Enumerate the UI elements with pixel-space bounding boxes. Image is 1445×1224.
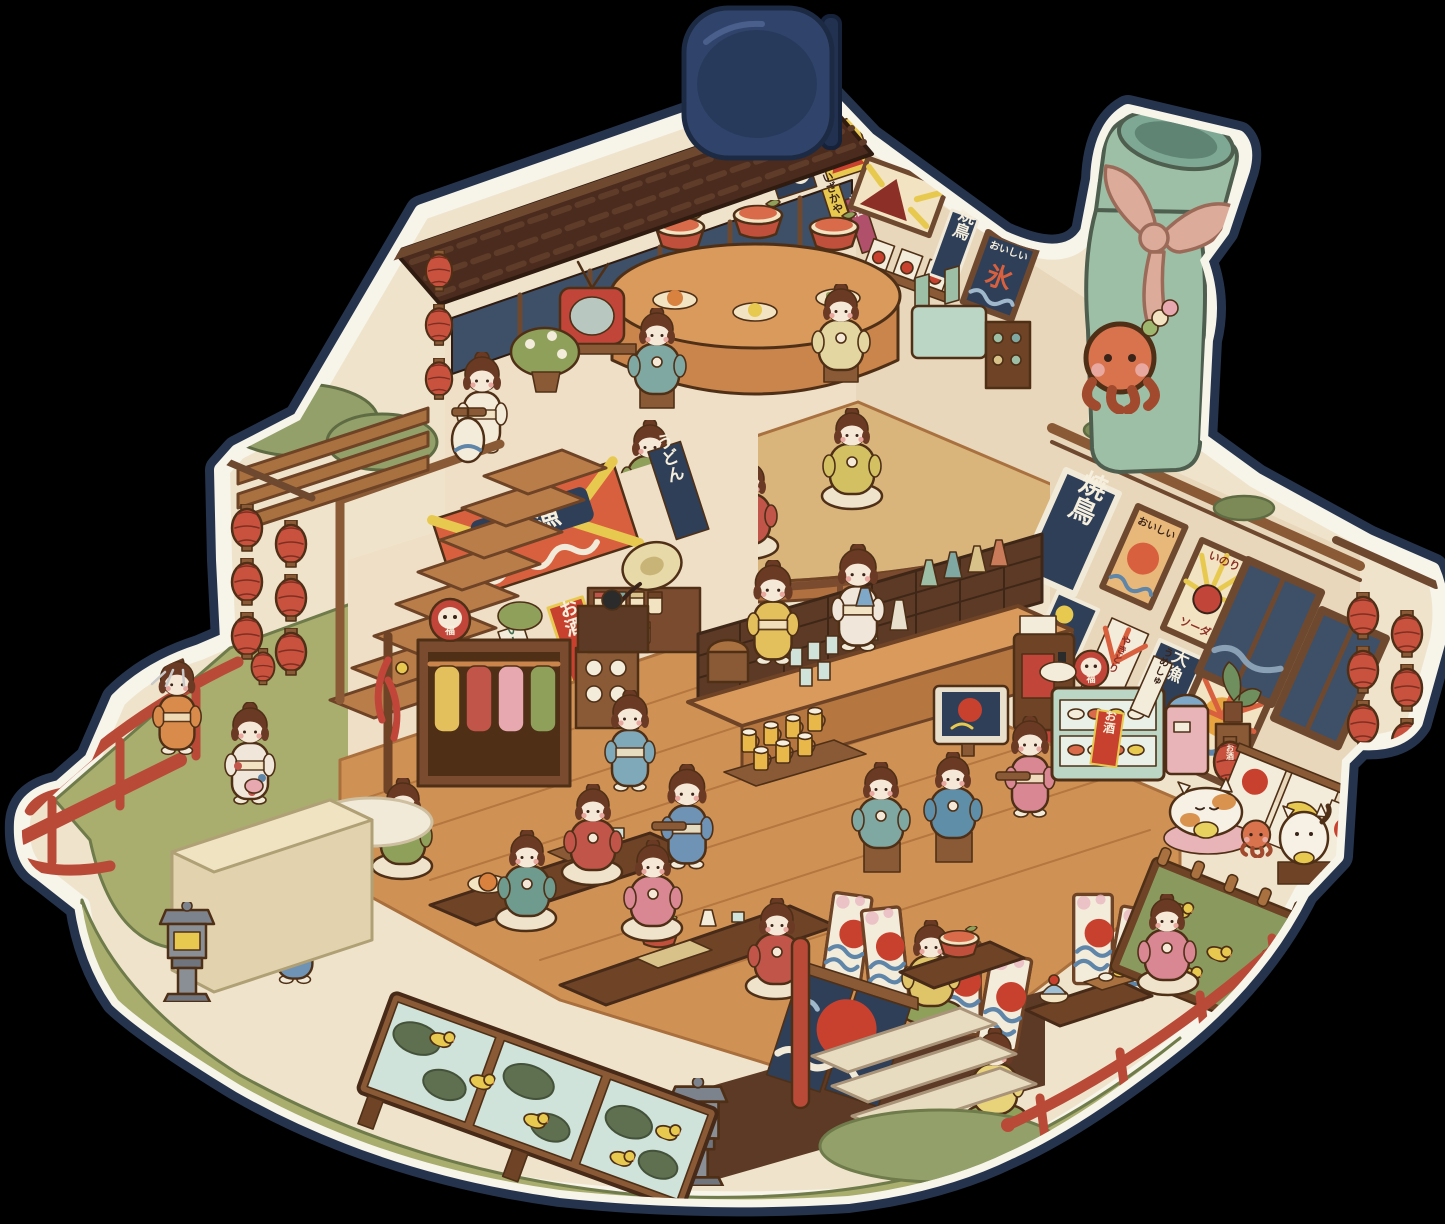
osake-lantern-text: お酒 [1226, 744, 1235, 761]
clip-face [697, 30, 817, 138]
white-cloth [1040, 662, 1076, 682]
daruma2-fuku-text: 福 [1085, 673, 1095, 685]
sticker-scene: いざかや お酒 焼鳥 [0, 0, 1445, 1224]
wardrobe-plant [498, 602, 542, 630]
purse [245, 779, 263, 793]
lemon [1194, 822, 1218, 838]
photo-of-izakaya-sticker: { "scene": { "description": "Die-cut sti… [0, 0, 1445, 1224]
fridge [912, 306, 986, 358]
sake-crates [986, 322, 1030, 388]
water-cooler [1166, 695, 1208, 774]
roof-corner-lanterns [426, 250, 452, 399]
binder-clip [684, 8, 840, 158]
sake-barrel [708, 640, 748, 682]
red-post [792, 938, 809, 1108]
tissue-box [1020, 616, 1056, 634]
daruma-fuku-text: 福 [444, 624, 455, 637]
